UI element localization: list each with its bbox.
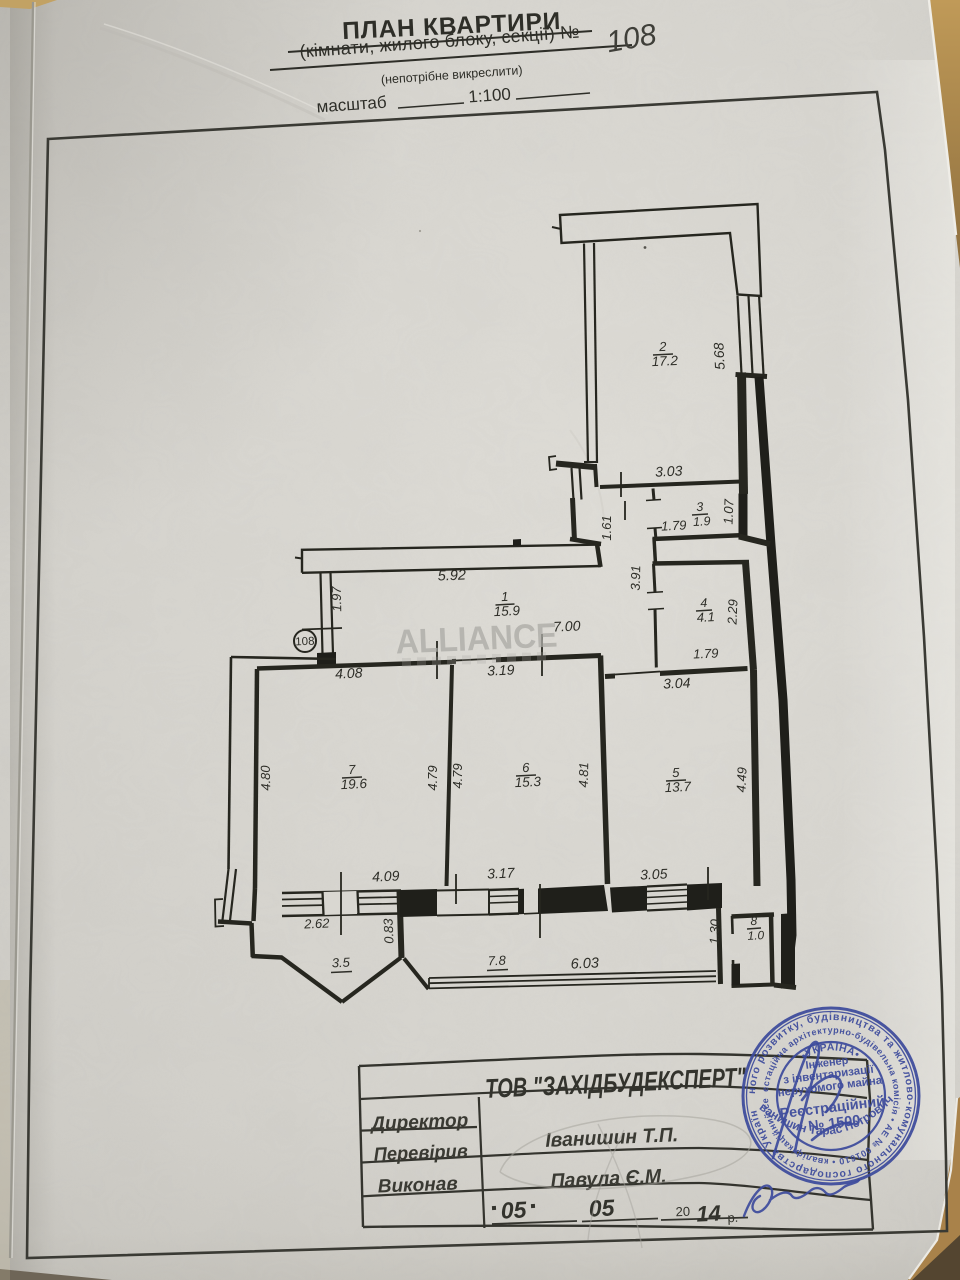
svg-text:19.6: 19.6	[340, 776, 367, 792]
svg-text:1.30: 1.30	[707, 918, 723, 945]
svg-text:7.8: 7.8	[487, 953, 506, 969]
svg-text:3.05: 3.05	[640, 865, 668, 882]
svg-text:8: 8	[750, 914, 758, 928]
svg-text:5.92: 5.92	[437, 568, 466, 585]
svg-text:Директор: Директор	[369, 1110, 469, 1135]
svg-text:1.07: 1.07	[721, 498, 737, 525]
svg-text:2.62: 2.62	[303, 915, 331, 931]
svg-text:2: 2	[658, 339, 668, 354]
svg-text:7.00: 7.00	[553, 617, 581, 634]
svg-text:13.7: 13.7	[664, 779, 691, 795]
svg-text:3: 3	[696, 500, 704, 514]
svg-text:1:100: 1:100	[468, 85, 512, 107]
svg-text:5.68: 5.68	[710, 342, 727, 370]
svg-text:ALLIANCE: ALLIANCE	[395, 616, 559, 661]
svg-text:6.03: 6.03	[570, 955, 599, 972]
svg-text:05: 05	[588, 1194, 616, 1221]
svg-text:3.03: 3.03	[655, 462, 683, 479]
svg-text:4: 4	[700, 596, 708, 610]
svg-text:3.04: 3.04	[663, 674, 691, 691]
svg-text:1.61: 1.61	[599, 515, 614, 540]
svg-text:4.49: 4.49	[733, 767, 749, 793]
svg-text:3.91: 3.91	[628, 565, 643, 591]
svg-text:4.80: 4.80	[258, 765, 273, 791]
svg-text:17.2: 17.2	[651, 353, 678, 369]
svg-text:05: 05	[500, 1196, 528, 1223]
svg-text:4.81: 4.81	[576, 762, 591, 788]
svg-text:3.5: 3.5	[331, 955, 350, 971]
svg-text:3.17: 3.17	[487, 864, 516, 881]
svg-text:15.9: 15.9	[493, 603, 520, 619]
svg-text:20: 20	[675, 1204, 690, 1219]
svg-text:4.79: 4.79	[450, 763, 465, 788]
svg-text:4.1: 4.1	[696, 609, 715, 625]
svg-text:3.19: 3.19	[487, 661, 515, 678]
svg-text:4.08: 4.08	[335, 664, 363, 681]
svg-text:1.97: 1.97	[329, 586, 344, 612]
svg-text:1: 1	[501, 589, 509, 604]
svg-text:108: 108	[295, 636, 315, 649]
svg-text:14: 14	[696, 1200, 722, 1226]
svg-text:1.9: 1.9	[693, 514, 711, 529]
svg-text:1.0: 1.0	[747, 928, 765, 943]
svg-text:4.09: 4.09	[372, 867, 400, 884]
svg-text:1.79: 1.79	[693, 645, 719, 661]
svg-text:Перевірив: Перевірив	[373, 1141, 468, 1166]
svg-text:2.29: 2.29	[725, 599, 741, 626]
svg-text:4.79: 4.79	[425, 765, 440, 790]
svg-text:0.83: 0.83	[381, 917, 397, 944]
svg-text:Виконав: Виконав	[377, 1173, 458, 1197]
svg-text:15.3: 15.3	[514, 774, 541, 790]
svg-text:1.79: 1.79	[661, 517, 687, 533]
